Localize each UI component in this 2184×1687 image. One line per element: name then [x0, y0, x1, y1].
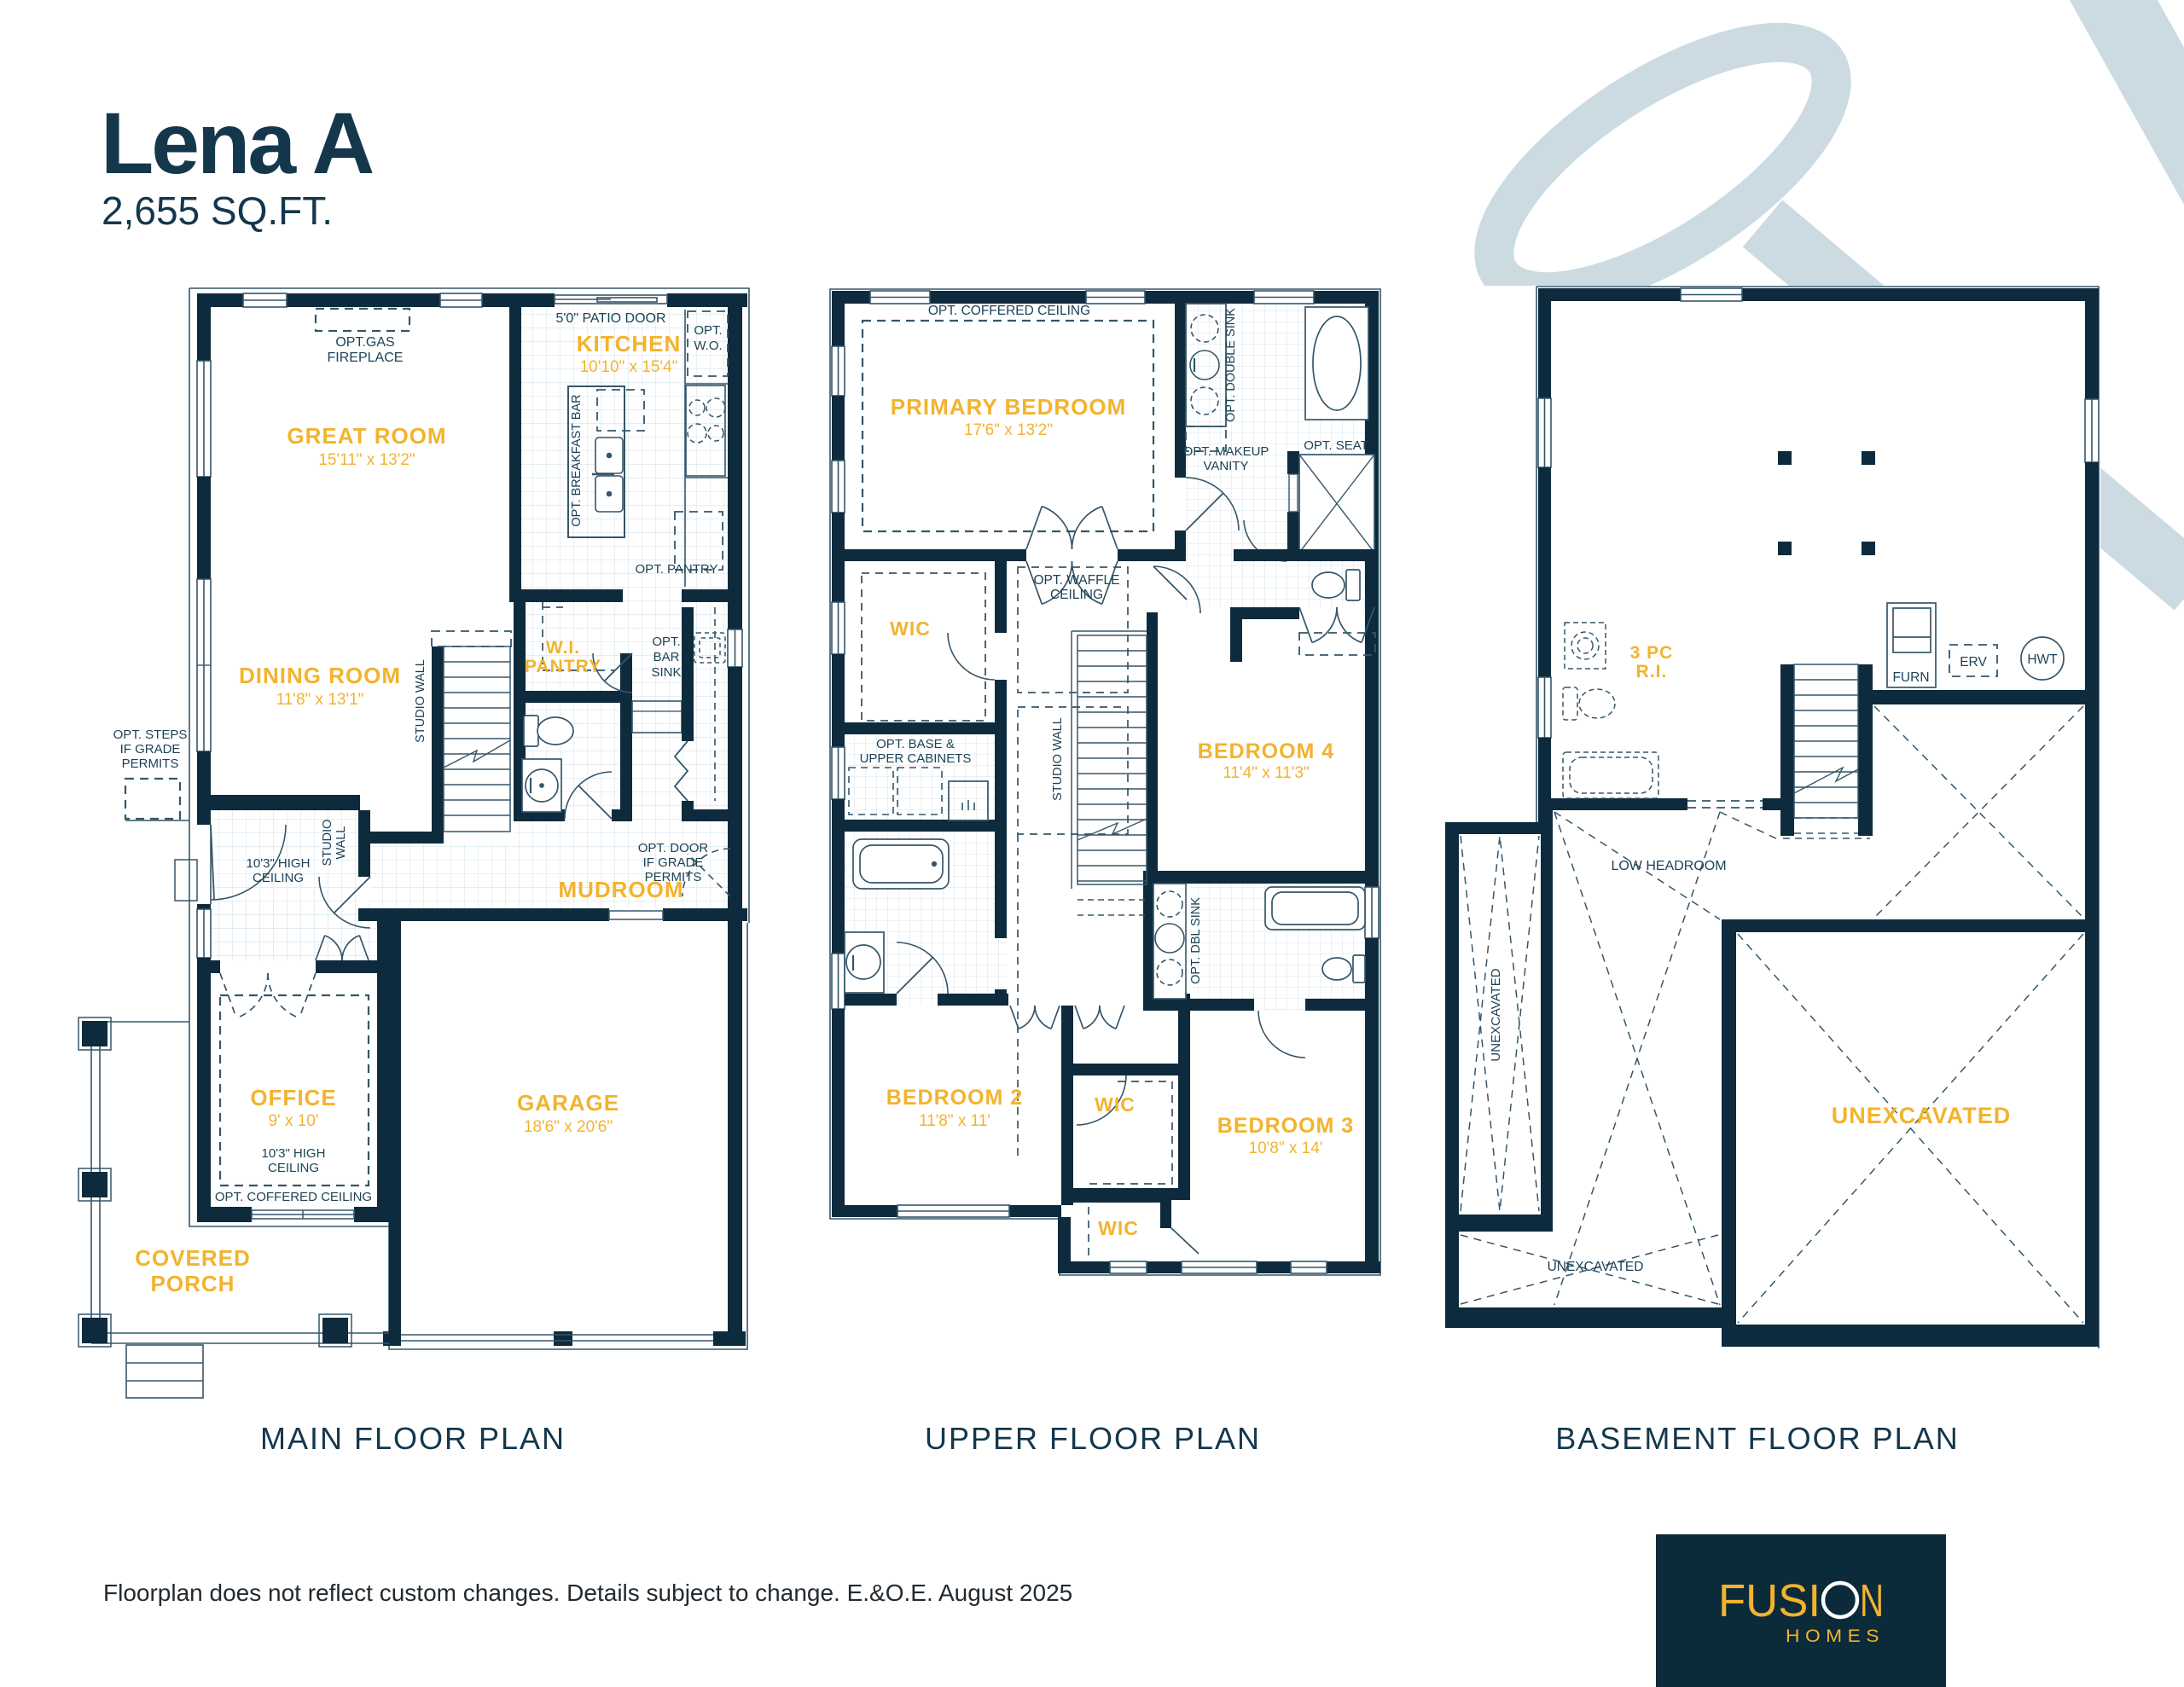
svg-text:PORCH: PORCH: [151, 1271, 235, 1296]
svg-text:PANTRY: PANTRY: [525, 657, 601, 676]
svg-text:IF GRADE: IF GRADE: [120, 742, 181, 757]
svg-text:BEDROOM 3: BEDROOM 3: [1217, 1114, 1354, 1138]
svg-text:OPT. COFFERED CEILING: OPT. COFFERED CEILING: [215, 1190, 372, 1204]
svg-text:17'6" x 13'2": 17'6" x 13'2": [964, 421, 1053, 439]
svg-text:HOMES: HOMES: [1786, 1626, 1885, 1646]
svg-text:VANITY: VANITY: [1203, 459, 1248, 473]
svg-text:WALL: WALL: [334, 826, 348, 860]
svg-text:BEDROOM 2: BEDROOM 2: [886, 1086, 1023, 1110]
svg-text:OPT. WAFFLE: OPT. WAFFLE: [1033, 573, 1119, 588]
svg-text:PERMITS: PERMITS: [645, 870, 702, 884]
svg-text:STUDIO WALL: STUDIO WALL: [414, 659, 427, 743]
svg-text:11'8" x 11': 11'8" x 11': [919, 1112, 990, 1130]
svg-text:FURN: FURN: [1892, 670, 1929, 685]
svg-text:Lena A: Lena A: [101, 95, 373, 192]
svg-text:FIREPLACE: FIREPLACE: [328, 351, 404, 365]
svg-text:GARAGE: GARAGE: [517, 1090, 619, 1116]
svg-text:KITCHEN: KITCHEN: [577, 331, 682, 357]
svg-text:OPT. PANTRY: OPT. PANTRY: [636, 562, 718, 577]
svg-text:OPT. MAKEUP: OPT. MAKEUP: [1183, 444, 1269, 459]
svg-text:CEILING: CEILING: [268, 1161, 319, 1175]
svg-text:STUDIO: STUDIO: [321, 820, 334, 867]
svg-text:BASEMENT FLOOR PLAN: BASEMENT FLOOR PLAN: [1555, 1421, 1959, 1456]
svg-text:PRIMARY BEDROOM: PRIMARY BEDROOM: [891, 394, 1126, 420]
svg-text:PERMITS: PERMITS: [122, 757, 179, 771]
svg-text:N: N: [1860, 1575, 1884, 1626]
svg-text:MAIN FLOOR PLAN: MAIN FLOOR PLAN: [260, 1421, 566, 1456]
svg-text:OPT. BREAKFAST BAR: OPT. BREAKFAST BAR: [570, 394, 584, 526]
svg-text:OPT. DOUBLE SINK: OPT. DOUBLE SINK: [1224, 308, 1238, 422]
svg-text:BAR: BAR: [653, 650, 680, 664]
svg-text:9' x 10': 9' x 10': [268, 1112, 318, 1130]
svg-text:BEDROOM 4: BEDROOM 4: [1198, 739, 1334, 763]
svg-text:OPT. SEAT: OPT. SEAT: [1304, 438, 1368, 453]
svg-text:COVERED: COVERED: [135, 1245, 251, 1271]
svg-text:OPT.GAS: OPT.GAS: [335, 335, 394, 350]
svg-text:OPT.: OPT.: [652, 635, 680, 649]
svg-text:UPPER FLOOR PLAN: UPPER FLOOR PLAN: [925, 1421, 1261, 1456]
svg-text:SINK: SINK: [651, 665, 681, 680]
svg-text:W.I.: W.I.: [546, 638, 580, 658]
svg-text:ERV: ERV: [1960, 655, 1987, 670]
svg-text:10'3" HIGH: 10'3" HIGH: [262, 1146, 326, 1161]
svg-text:OPT. DBL SINK: OPT. DBL SINK: [1189, 897, 1203, 984]
svg-text:18'6" x 20'6": 18'6" x 20'6": [524, 1118, 613, 1136]
svg-text:FUSI: FUSI: [1718, 1575, 1821, 1626]
svg-text:OFFICE: OFFICE: [250, 1085, 336, 1110]
svg-text:IF GRADE: IF GRADE: [643, 855, 704, 870]
svg-text:LOW HEADROOM: LOW HEADROOM: [1611, 859, 1726, 873]
svg-text:5'0" PATIO DOOR: 5'0" PATIO DOOR: [555, 311, 665, 326]
svg-text:STUDIO WALL: STUDIO WALL: [1051, 717, 1065, 801]
svg-text:10'8" x 14': 10'8" x 14': [1249, 1139, 1323, 1157]
svg-text:11'8" x 13'1": 11'8" x 13'1": [276, 691, 364, 709]
svg-text:WIC: WIC: [1098, 1217, 1139, 1239]
svg-text:15'11" x 13'2": 15'11" x 13'2": [318, 451, 415, 469]
svg-text:HWT: HWT: [2027, 652, 2058, 667]
svg-text:W.O.: W.O.: [694, 339, 722, 353]
svg-text:OPT.: OPT.: [694, 323, 722, 338]
svg-text:R.I.: R.I.: [1636, 662, 1668, 681]
svg-text:OPT. COFFERED CEILING: OPT. COFFERED CEILING: [928, 304, 1090, 318]
svg-text:DINING ROOM: DINING ROOM: [239, 663, 401, 688]
svg-text:CEILING: CEILING: [253, 871, 304, 885]
svg-text:OPT. STEPS: OPT. STEPS: [113, 728, 188, 742]
svg-text:Floorplan does not reflect cus: Floorplan does not reflect custom change…: [103, 1580, 1072, 1606]
svg-text:WIC: WIC: [890, 617, 931, 640]
svg-text:WIC: WIC: [1095, 1093, 1136, 1116]
svg-text:OPT. BASE &: OPT. BASE &: [876, 737, 955, 751]
svg-text:10'10" x 15'4": 10'10" x 15'4": [580, 358, 678, 376]
svg-text:GREAT ROOM: GREAT ROOM: [287, 423, 446, 449]
svg-text:3 PC: 3 PC: [1630, 643, 1674, 663]
svg-text:UNEXCAVATED: UNEXCAVATED: [1832, 1103, 2012, 1128]
svg-text:11'4" x 11'3": 11'4" x 11'3": [1223, 764, 1309, 782]
svg-text:2,655 SQ.FT.: 2,655 SQ.FT.: [102, 188, 333, 233]
svg-text:OPT. DOOR: OPT. DOOR: [638, 841, 709, 855]
svg-text:CEILING: CEILING: [1050, 588, 1103, 602]
svg-text:UNEXCAVATED: UNEXCAVATED: [1548, 1260, 1644, 1274]
svg-text:UPPER CABINETS: UPPER CABINETS: [860, 751, 972, 766]
svg-text:UNEXCAVATED: UNEXCAVATED: [1489, 968, 1503, 1061]
svg-text:10'3" HIGH: 10'3" HIGH: [247, 856, 311, 871]
